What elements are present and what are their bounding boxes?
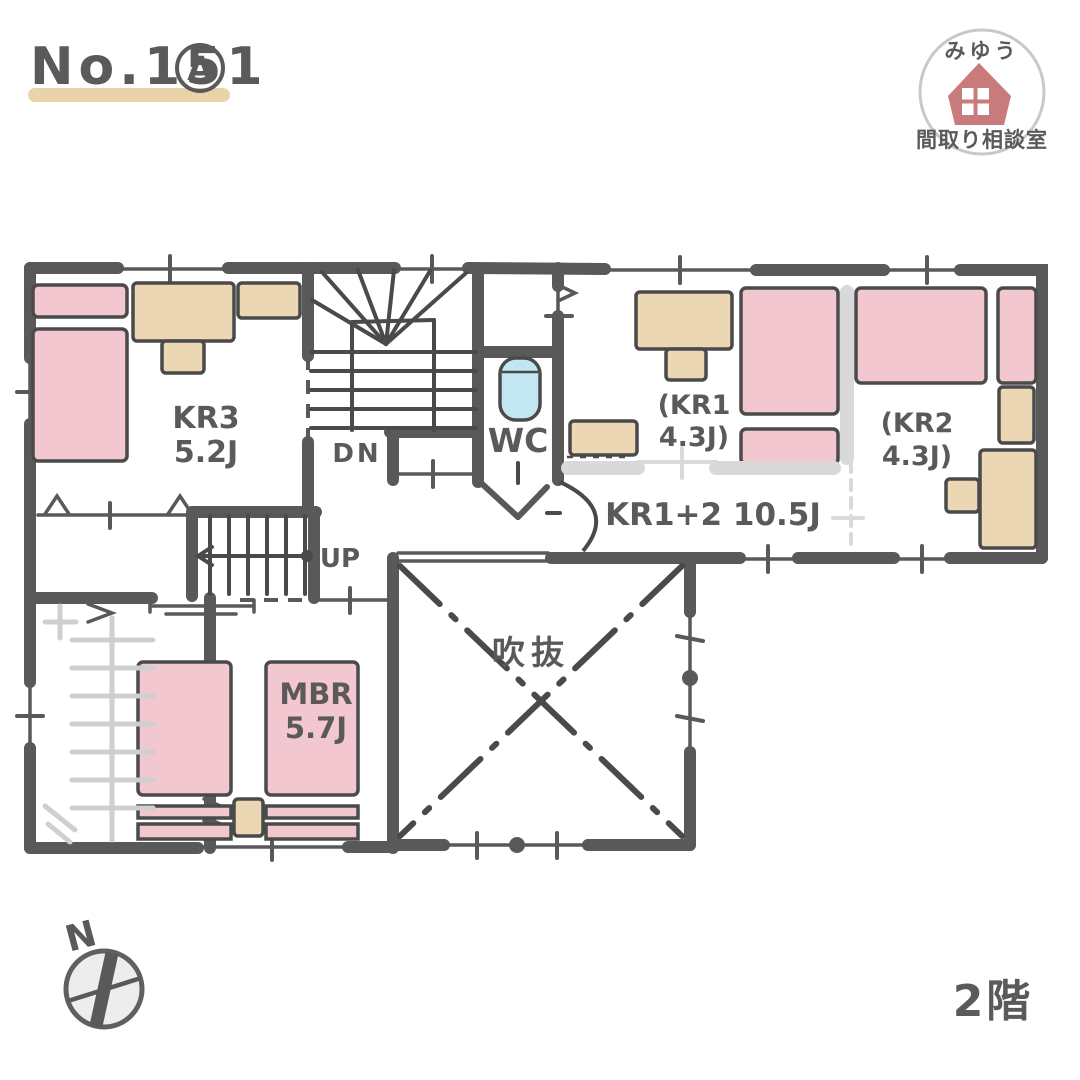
kr3-label: KR3: [172, 401, 239, 436]
mbr-bed: [138, 662, 231, 795]
kr2-shelf: [999, 387, 1034, 443]
kr3-bed-pillow: [33, 285, 127, 317]
wc-label: WC: [488, 421, 549, 460]
kr1-shelf: [570, 421, 637, 455]
floor-plan-canvas: No.151 A みゆう 間取り相談室: [0, 0, 1080, 1080]
logo-bottom-text: 間取り相談室: [916, 128, 1048, 152]
kr12-label: KR1+2 10.5J: [605, 497, 821, 533]
toilet-icon: [500, 358, 540, 420]
kr1-bed-pillow: [741, 429, 838, 464]
kr2-bed-pillow: [998, 288, 1036, 383]
kr1-bed: [741, 288, 838, 414]
floor-label: 2階: [953, 976, 1034, 1027]
mbr-bed-pillow: [266, 824, 358, 839]
plan-title: No.151 A: [28, 37, 268, 102]
logo-top-text: みゆう: [945, 39, 1020, 63]
kr2-chair: [946, 479, 979, 512]
wic-door-fold-icon: [88, 604, 112, 622]
kr3-desk: [133, 283, 234, 341]
kr3-bed: [33, 329, 127, 461]
kr3-shelf: [238, 283, 300, 318]
kr1-chair: [666, 349, 706, 380]
mbr-bed-fold: [266, 806, 358, 818]
kr1-desk: [636, 292, 732, 349]
compass-icon: N: [61, 913, 142, 1027]
staircase-down: [311, 270, 476, 430]
kr2-label: (KR2: [881, 408, 954, 439]
wic-hanger-icon: [45, 606, 153, 842]
floor-plan-page: No.151 A みゆう 間取り相談室: [0, 0, 1080, 1080]
void-cross: [400, 566, 682, 836]
staircase-up: [198, 516, 313, 594]
kr3-size-label: 5.2J: [174, 435, 238, 470]
kr3-door-fold-icon: [45, 496, 69, 514]
stairs-dn-label: DN: [332, 439, 381, 469]
variant-letter: A: [187, 49, 213, 88]
kr1-size-label: 4.3J): [659, 422, 729, 453]
mbr-bed-pillow: [138, 824, 231, 839]
wc-entry-wall: [518, 487, 547, 517]
plan-number: No.151: [30, 37, 268, 97]
kr1-label: (KR1: [658, 390, 731, 421]
mbr-label: MBR: [279, 677, 352, 711]
compass-north-label: N: [61, 913, 101, 960]
kr2-desk: [980, 450, 1036, 548]
void-label: 吹抜: [492, 633, 570, 672]
mbr-sliding-door-icon: [150, 600, 254, 614]
kr2-size-label: 4.3J): [882, 441, 952, 472]
mbr-size-label: 5.7J: [285, 711, 347, 745]
kr12-door-swing-arc: [560, 482, 596, 551]
kr3-door-fold-icon: [168, 496, 192, 514]
kr3-chair: [162, 341, 204, 373]
kr2-bed: [856, 288, 986, 383]
wc-entry-wall: [480, 482, 518, 517]
stairs-up-label: UP: [320, 544, 360, 574]
logo: みゆう 間取り相談室: [916, 30, 1048, 154]
mbr-nightstand: [234, 799, 263, 836]
